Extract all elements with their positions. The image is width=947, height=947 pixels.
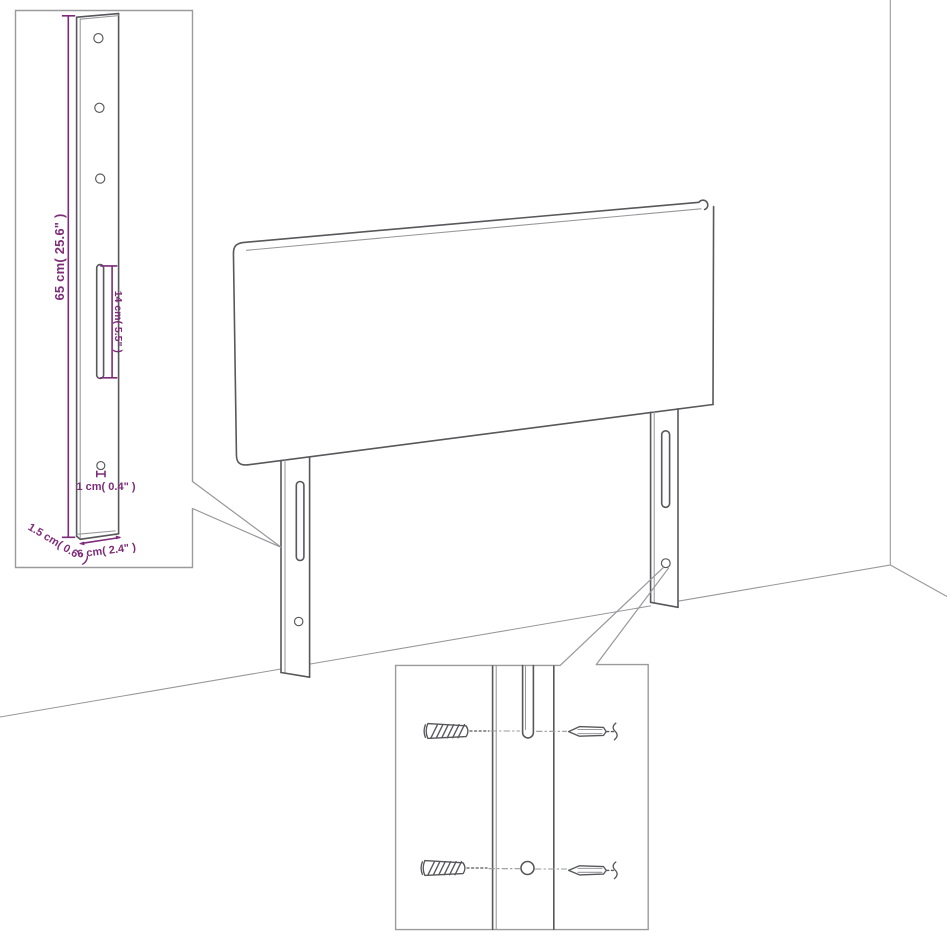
left-leg-slot [296, 482, 304, 561]
wall-plug-threads [431, 725, 465, 738]
headboard-right-edge [713, 207, 714, 405]
product-diagram-canvas: 65 cm( 25.6" ) 14 cm( 5.5" ) 1 cm( 0.4" … [0, 0, 947, 947]
inset-leg-hole-3 [96, 174, 105, 183]
hardware-row-slot [424, 723, 617, 740]
screw-thread-lines [578, 730, 602, 734]
dimension-hole-label: 1 cm( 0.4" ) [76, 481, 135, 493]
inset-leg-bottom-face-line [77, 531, 115, 534]
screw-icon [569, 723, 618, 740]
section-leg-hole [521, 862, 534, 875]
dimension-width-label: 6 cm( 2.4" ) [77, 541, 137, 560]
wall-plug-flange [421, 862, 422, 875]
headboard-panel [233, 200, 713, 465]
screw-body [569, 866, 607, 875]
room-perspective-lines [0, 0, 947, 717]
callout-lines-right [560, 568, 668, 666]
callout-lines-left [193, 482, 281, 548]
callout-line [560, 568, 663, 666]
wall-plug-flange [424, 725, 425, 738]
left-leg-screw-hole [295, 617, 303, 625]
headboard-assembly-diagram: 65 cm( 25.6" ) 14 cm( 5.5" ) 1 cm( 0.4" … [0, 0, 947, 947]
screw-thread-lines [578, 868, 602, 872]
right-leg-screw-hole [661, 559, 670, 568]
callout-line [596, 568, 668, 664]
mounting-detail-inset [396, 665, 649, 930]
dimension-height-label: 65 cm( 25.6" ) [52, 213, 67, 300]
dimension-height: 65 cm( 25.6" ) [52, 16, 75, 538]
wall-plug-icon [424, 724, 489, 739]
wall-plug-icon [421, 861, 487, 876]
inset-leg-section [493, 666, 554, 930]
inset-leg-hole-1 [94, 34, 103, 43]
inset-leg-slot [97, 265, 104, 379]
left-leg-bottom-edge [281, 673, 310, 678]
dimension-hole: 1 cm( 0.4" ) [76, 471, 135, 493]
inset-leg-hole-2 [95, 103, 104, 112]
screw-body [569, 727, 607, 737]
headboard-right-leg [651, 409, 678, 608]
dimension-slot-label: 14 cm( 5.5" ) [112, 291, 124, 353]
dimension-width-arrow-right [116, 536, 122, 540]
headboard-outline [233, 200, 713, 465]
right-leg-bottom-edge [651, 602, 678, 607]
inset-leg-small-hole [97, 462, 105, 470]
section-leg-slot [523, 666, 534, 738]
dimension-width-arrow-left [79, 542, 85, 546]
hardware-row-hole [421, 861, 617, 879]
screw-icon [569, 862, 618, 879]
headboard-top-thickness-line [247, 209, 702, 251]
right-leg-slot [662, 431, 670, 508]
dimension-hole-bracket [97, 471, 105, 478]
leg-detail-inset: 65 cm( 25.6" ) 14 cm( 5.5" ) 1 cm( 0.4" … [16, 11, 193, 568]
floor-line-left [0, 565, 890, 717]
headboard-left-leg [281, 457, 310, 677]
floor-line-right [890, 565, 947, 597]
wall-plug-threads [428, 862, 462, 875]
